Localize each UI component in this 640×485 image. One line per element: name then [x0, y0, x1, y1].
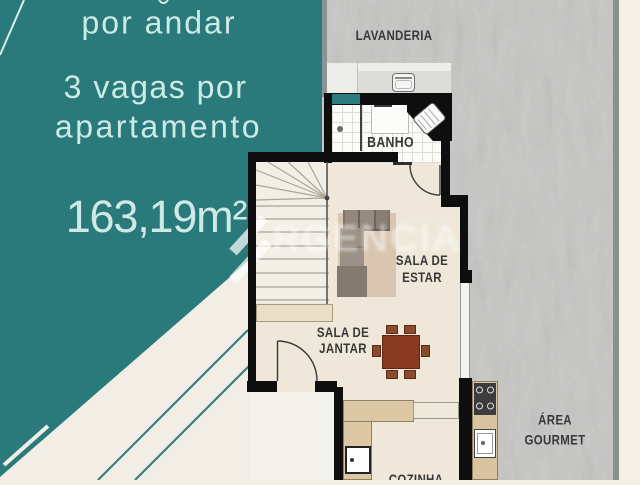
svg-text:RGENCIA: RGENCIA — [272, 218, 461, 260]
